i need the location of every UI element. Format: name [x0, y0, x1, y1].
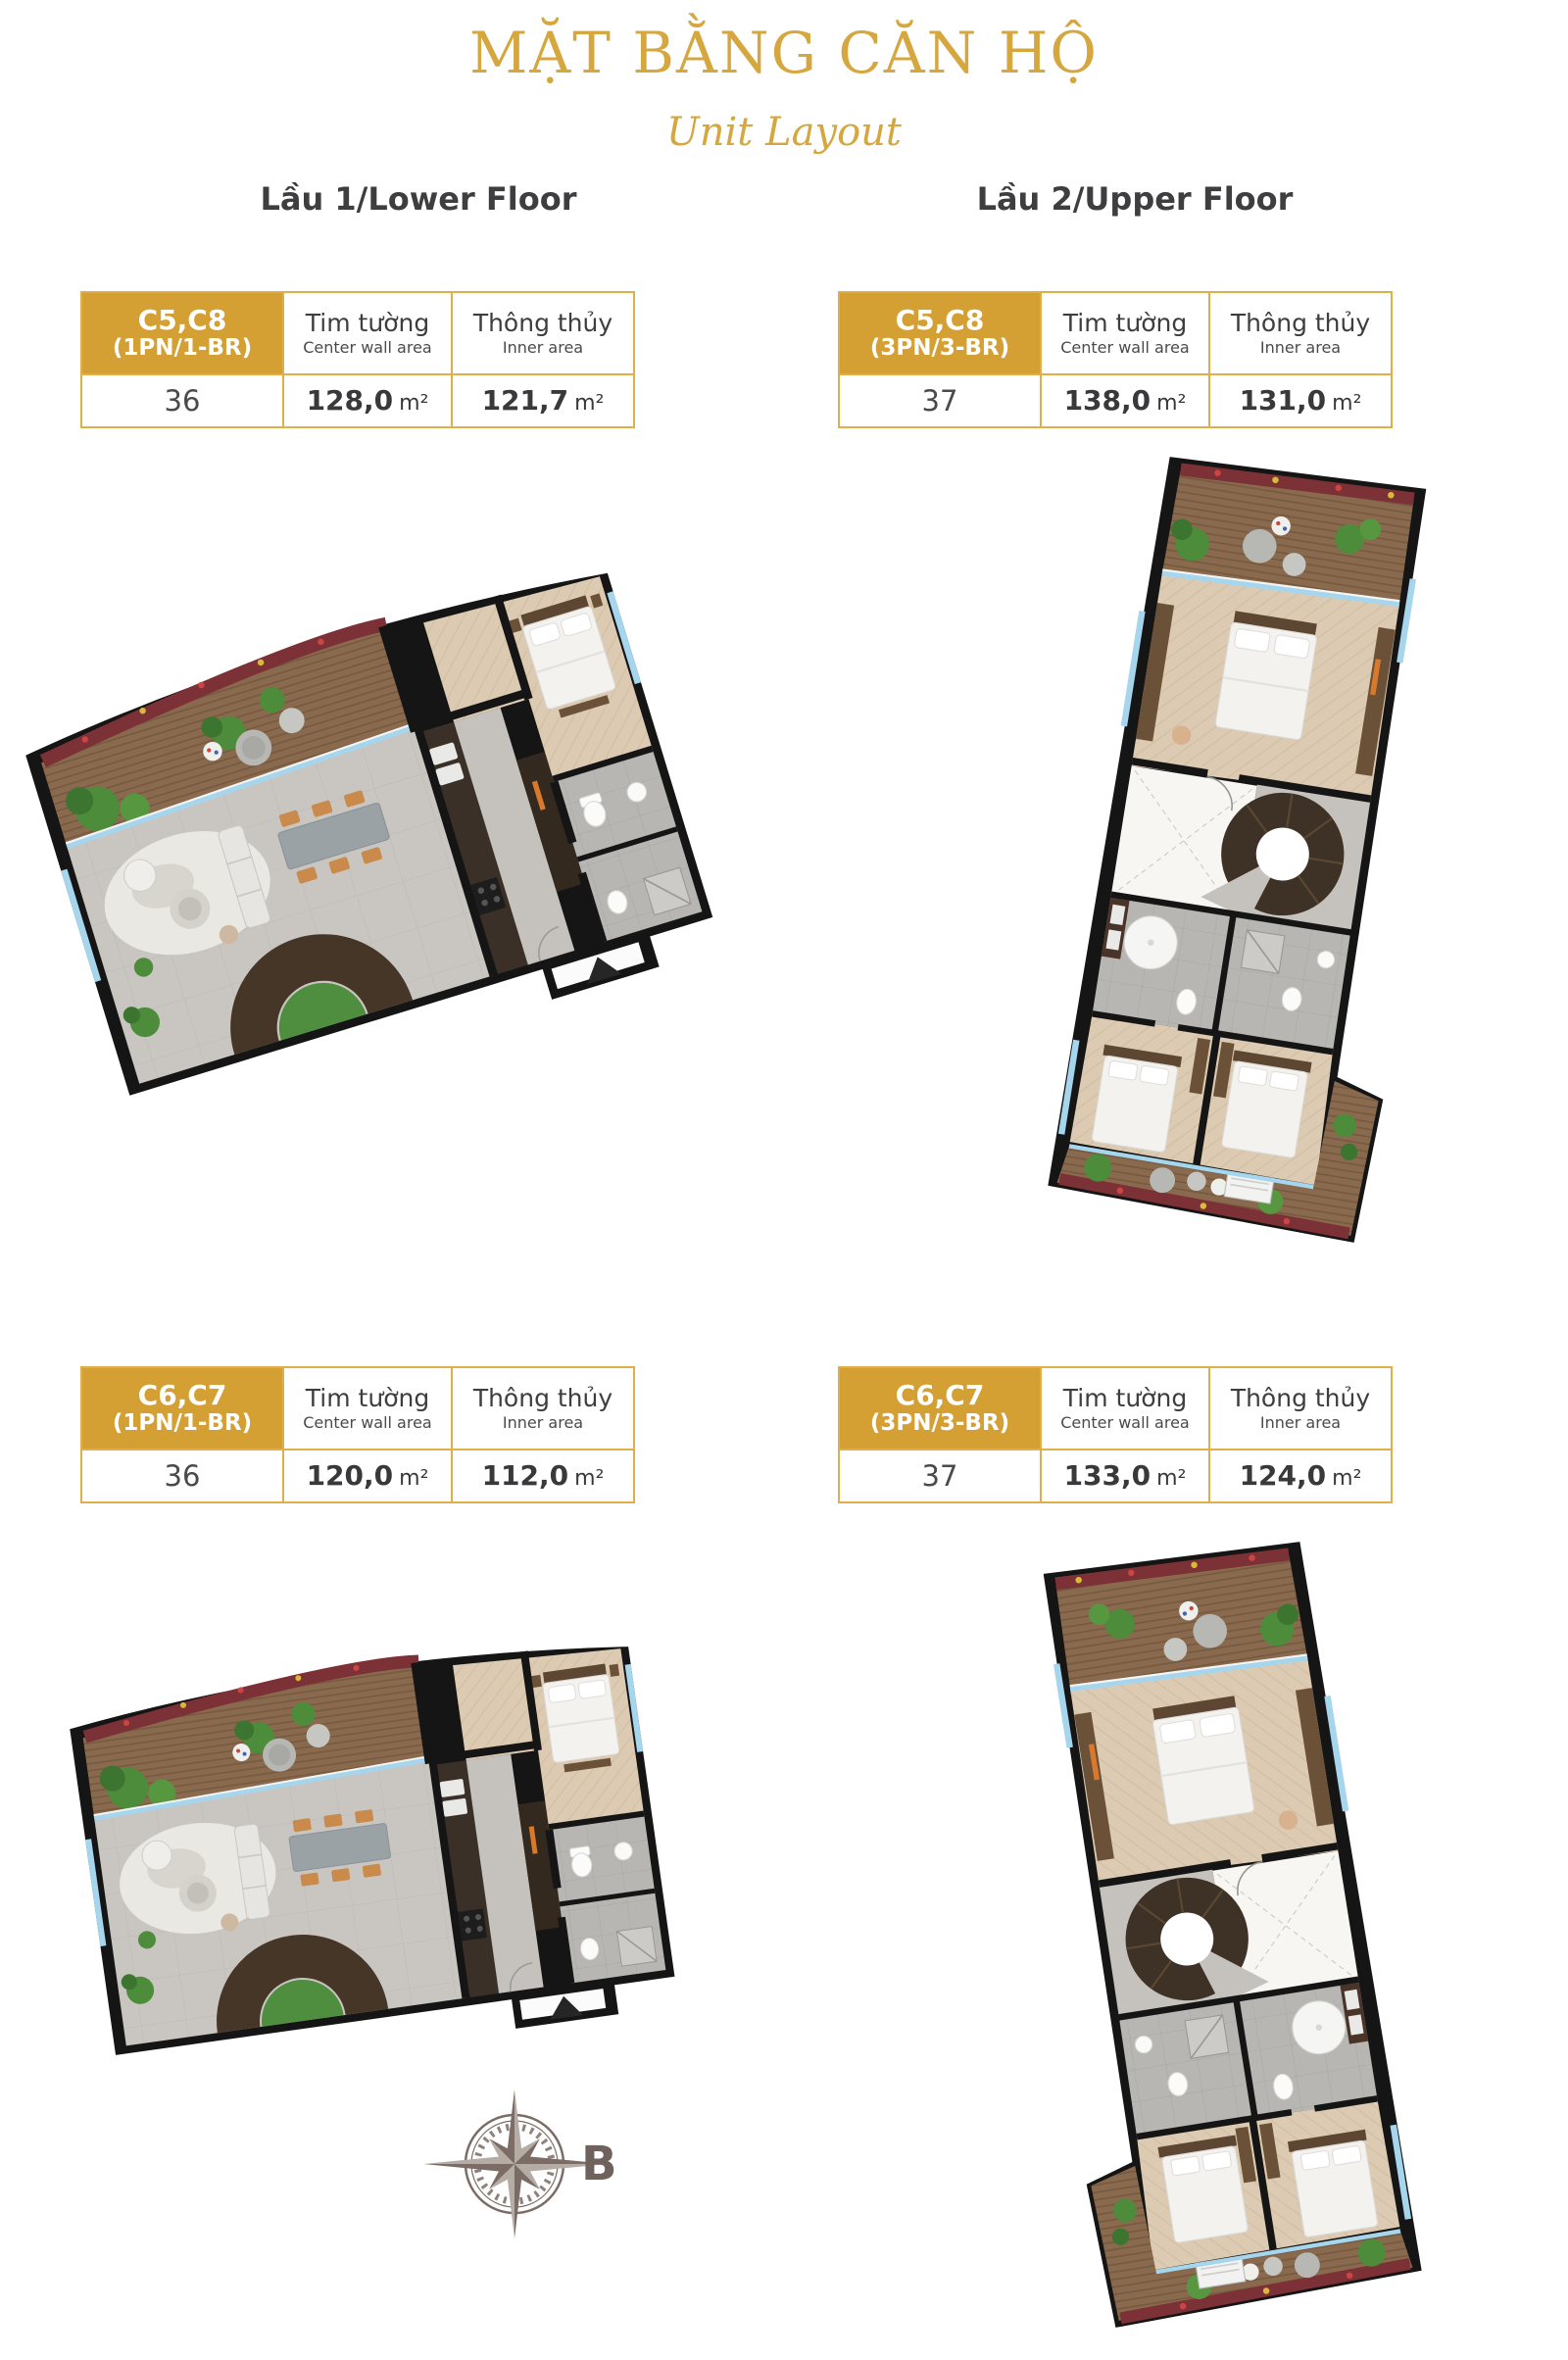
- heading-upper-floor: Lầu 2/Upper Floor: [872, 180, 1397, 218]
- unit-code-cell: C5,C8 (1PN/1-BR): [82, 293, 282, 373]
- floor-plan-c6c7-lower: [27, 1498, 694, 2184]
- level-value: 37: [922, 385, 958, 417]
- unit-code: C5,C8: [138, 305, 227, 335]
- center-wall-value: 133,0m²: [1064, 1460, 1187, 1492]
- center-wall-header: Tim tường Center wall area: [282, 293, 451, 373]
- inner-area-header: Thông thủy Inner area: [451, 293, 633, 373]
- unit-code: C6,C7: [896, 1380, 985, 1410]
- center-wall-value: 120,0m²: [307, 1460, 429, 1492]
- unit-table-c6c7-lower: C6,C7 (1PN/1-BR) Tim tường Center wall a…: [80, 1366, 635, 1503]
- inner-area-value: 124,0m²: [1240, 1460, 1362, 1492]
- unit-table-c6c7-upper: C6,C7 (3PN/3-BR) Tim tường Center wall a…: [838, 1366, 1393, 1503]
- unit-table-c5c8-lower: C5,C8 (1PN/1-BR) Tim tường Center wall a…: [80, 291, 635, 428]
- level-value: 36: [165, 1460, 201, 1492]
- unit-code-cell: C6,C7 (1PN/1-BR): [82, 1368, 282, 1449]
- unit-type: (3PN/3-BR): [870, 1411, 1009, 1437]
- center-wall-header: Tim tường Center wall area: [1040, 293, 1208, 373]
- unit-code: C6,C7: [138, 1380, 227, 1410]
- page-title: MẶT BẰNG CĂN HỘ: [0, 20, 1568, 86]
- unit-code-cell: C5,C8 (3PN/3-BR): [840, 293, 1040, 373]
- inner-area-value: 112,0m²: [482, 1460, 605, 1492]
- center-wall-header: Tim tường Center wall area: [1040, 1368, 1208, 1449]
- unit-layout-page: MẶT BẰNG CĂN HỘ Unit Layout Lầu 1/Lower …: [0, 0, 1568, 2360]
- level-value: 36: [165, 385, 201, 417]
- center-wall-value: 138,0m²: [1064, 385, 1187, 417]
- page-subtitle: Unit Layout: [0, 110, 1568, 155]
- level-value: 37: [922, 1460, 958, 1492]
- unit-table-c5c8-upper: C5,C8 (3PN/3-BR) Tim tường Center wall a…: [838, 291, 1393, 428]
- unit-type: (1PN/1-BR): [113, 1411, 252, 1437]
- inner-area-value: 121,7m²: [482, 385, 605, 417]
- inner-area-header: Thông thủy Inner area: [451, 1368, 633, 1449]
- heading-lower-floor: Lầu 1/Lower Floor: [157, 180, 680, 218]
- unit-type: (1PN/1-BR): [113, 336, 252, 362]
- inner-area-header: Thông thủy Inner area: [1208, 293, 1391, 373]
- floor-plan-c5c8-upper: [965, 459, 1514, 1233]
- compass-north-label: B: [581, 2137, 617, 2191]
- floor-plan-c5c8-lower: [22, 482, 688, 1168]
- unit-code-cell: C6,C7 (3PN/3-BR): [840, 1368, 1040, 1449]
- unit-code: C5,C8: [896, 305, 985, 335]
- inner-area-header: Thông thủy Inner area: [1208, 1368, 1391, 1449]
- floor-plan-c6c7-upper: [955, 1544, 1504, 2328]
- center-wall-header: Tim tường Center wall area: [282, 1368, 451, 1449]
- compass: B: [421, 2086, 676, 2252]
- inner-area-value: 131,0m²: [1240, 385, 1362, 417]
- center-wall-value: 128,0m²: [307, 385, 429, 417]
- unit-type: (3PN/3-BR): [870, 336, 1009, 362]
